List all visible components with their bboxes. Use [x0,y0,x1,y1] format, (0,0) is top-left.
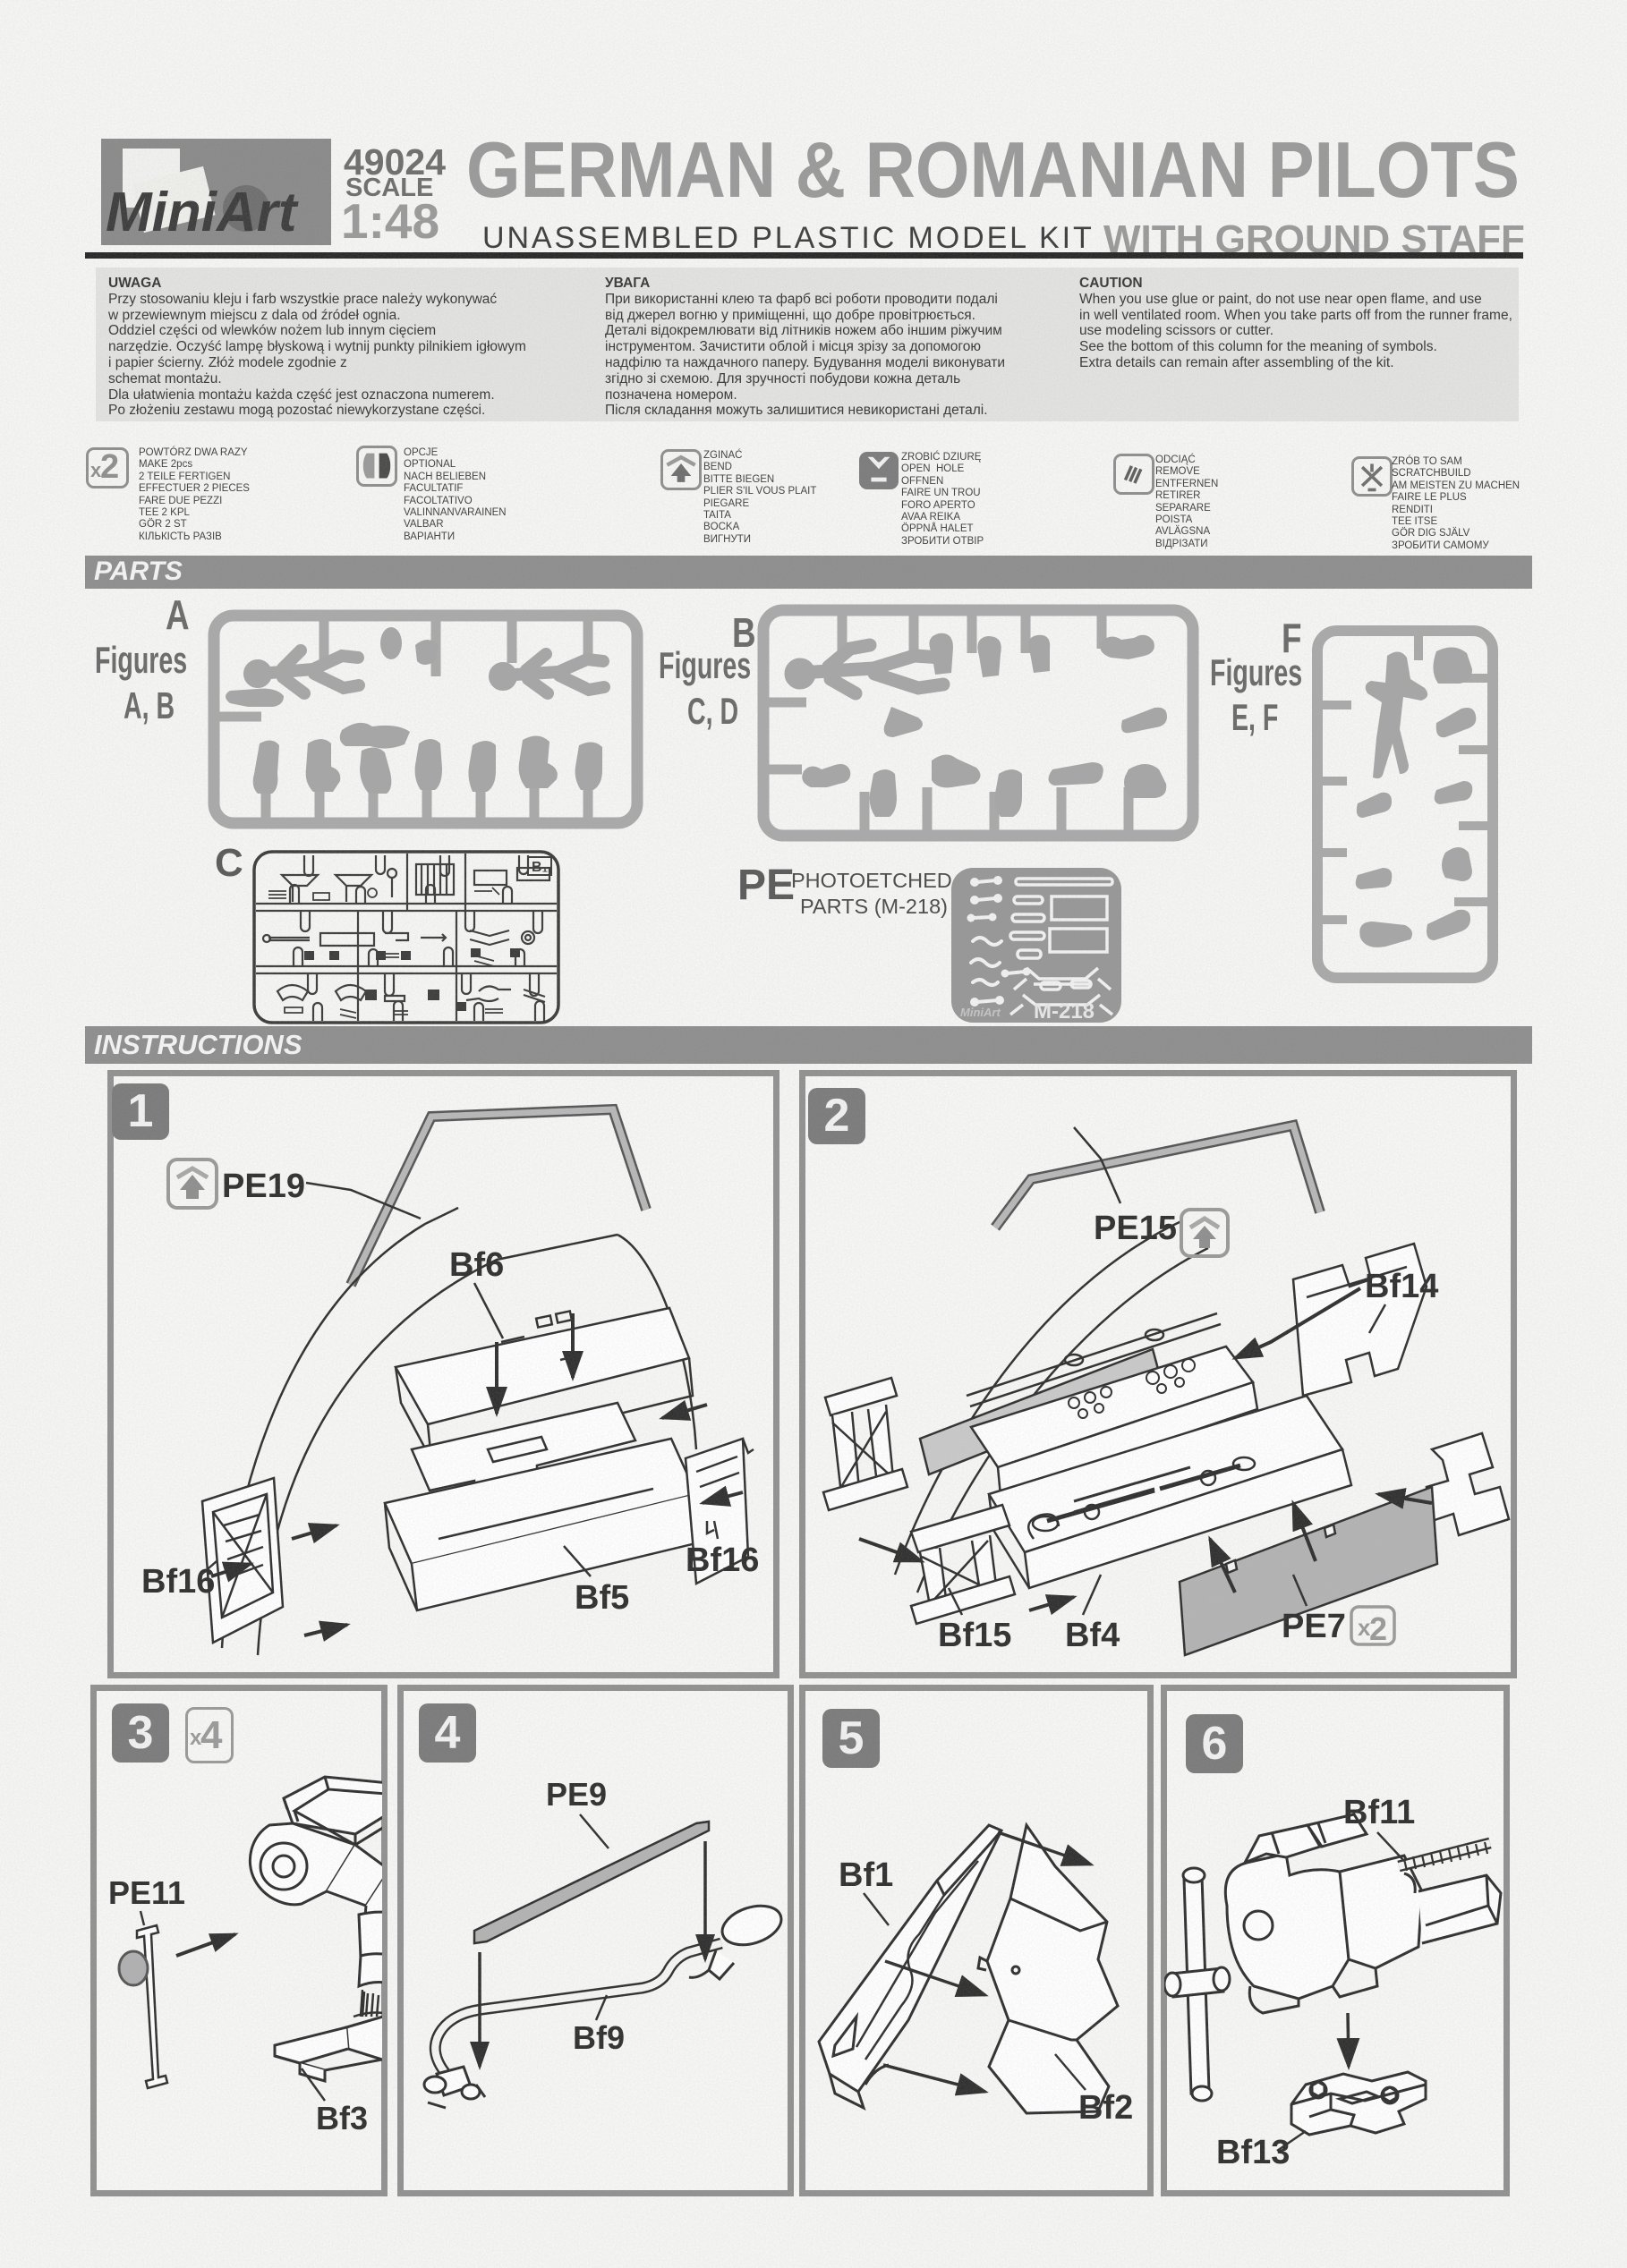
svg-text:Bf14: Bf14 [1365,1268,1438,1305]
svg-text:M-218: M-218 [1034,999,1095,1023]
svg-text:Bf16: Bf16 [686,1542,759,1579]
svg-text:PE9: PE9 [546,1776,607,1813]
svg-text:Bf5: Bf5 [575,1579,629,1617]
svg-text:Bf11: Bf11 [1343,1794,1415,1831]
svg-text:Bf3: Bf3 [316,2100,368,2136]
svg-text:PE15: PE15 [1094,1210,1177,1247]
svg-text:2: 2 [1369,1610,1387,1647]
svg-text:PE19: PE19 [222,1168,305,1205]
svg-text:Bf16: Bf16 [141,1563,215,1601]
svg-text:PE11: PE11 [108,1874,185,1911]
svg-text:PE7: PE7 [1282,1608,1346,1645]
svg-text:Bf6: Bf6 [449,1246,504,1284]
svg-text:Bf4: Bf4 [1065,1617,1120,1654]
svg-text:Bf2: Bf2 [1078,2089,1133,2127]
svg-text:MiniArt: MiniArt [106,182,299,243]
svg-text:B₁: B₁ [532,860,549,875]
svg-text:Bf9: Bf9 [573,2019,625,2056]
svg-text:Bf13: Bf13 [1216,2134,1290,2171]
svg-text:Bf1: Bf1 [839,1856,893,1894]
svg-text:MiniArt: MiniArt [960,1006,1001,1019]
svg-text:Bf15: Bf15 [938,1617,1011,1654]
